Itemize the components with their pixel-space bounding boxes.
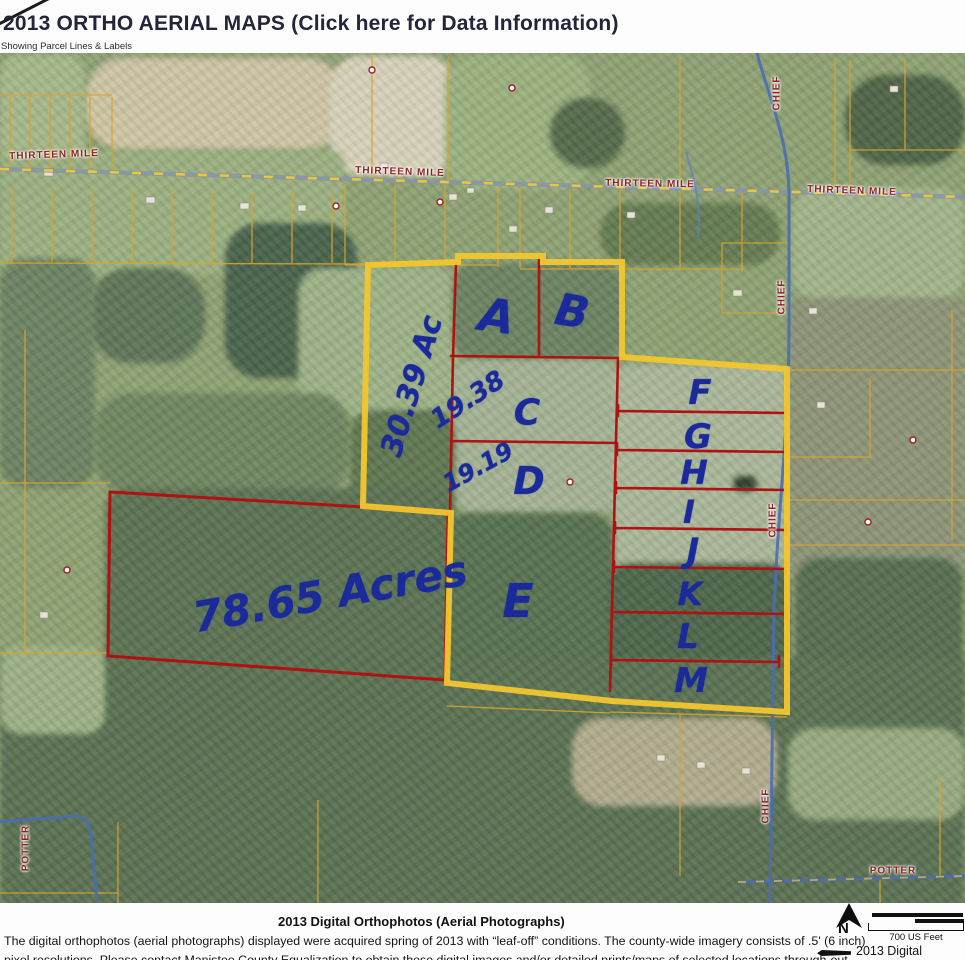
scalebar-bracket: [868, 923, 964, 931]
page: 30.39 AcAB19.38C19.19DE78.65 AcresFGHIJK…: [0, 0, 965, 960]
north-label: N: [838, 920, 849, 937]
layer-status-text: Showing Parcel Lines & Labels: [1, 41, 132, 52]
footer-description-line1: The digital orthophotos (aerial photogra…: [4, 934, 865, 948]
scalebar-segment: [872, 913, 963, 917]
footer-description-line2: pixel resolutions. Please contact Manist…: [4, 953, 848, 960]
page-title-link[interactable]: 2013 ORTHO AERIAL MAPS (Click here for D…: [3, 12, 619, 36]
legend-label: 2013 Digital: [856, 944, 922, 958]
aerial-photo-texture: [0, 53, 965, 905]
aerial-map[interactable]: [0, 53, 965, 905]
footer: 2013 Digital Orthophotos (Aerial Photogr…: [0, 903, 965, 960]
scalebar-label: 700 US Feet: [868, 932, 964, 943]
footer-title: 2013 Digital Orthophotos (Aerial Photogr…: [278, 914, 558, 929]
header: 2013 ORTHO AERIAL MAPS (Click here for D…: [0, 0, 965, 53]
